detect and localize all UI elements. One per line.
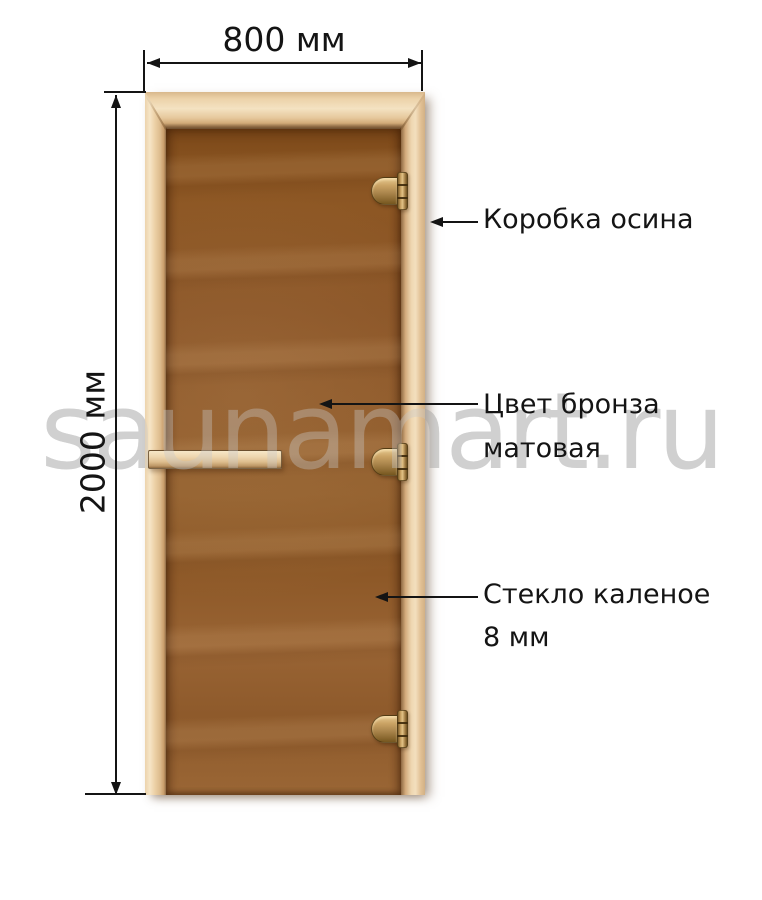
width-extension-line-left [143,50,145,91]
hinge-barrel [397,172,408,210]
hinge-barrel [397,710,408,748]
height-dimension-label: 2000 мм [74,370,113,514]
hinge-middle [371,443,409,481]
product-diagram: saunamart.ru saunamart.ru 800 мм [0,0,762,900]
door-handle [148,450,282,469]
height-extension-line-top [104,91,146,93]
width-dimension-label: 800 мм [147,20,421,59]
glass-type-annotation-line [388,596,478,598]
width-dimension-line [147,62,421,64]
frame-annotation-label: Коробка осина [483,204,694,236]
sauna-door [145,92,425,795]
frame-annotation-arrow-icon [430,217,443,227]
width-arrow-left-icon [147,58,160,68]
glass-color-annotation-line [332,403,478,405]
hinge-barrel [397,443,408,481]
hinge-flap [371,448,398,476]
hinge-top [371,172,409,210]
door-frame-left-stile [145,92,167,795]
height-arrow-up-icon [111,95,121,108]
height-arrow-down-icon [111,782,121,795]
width-arrow-right-icon [408,58,421,68]
door-frame-top-rail [145,92,425,129]
glass-color-annotation-arrow-icon [319,399,332,409]
hinge-flap [371,177,398,205]
glass-type-annotation-label: Стекло каленое 8 мм [483,573,710,659]
glass-color-annotation-label: Цвет бронза матовая [483,383,660,471]
hinge-bottom [371,710,409,748]
glass-type-annotation-line2: 8 мм [483,616,710,659]
glass-type-annotation-arrow-icon [375,592,388,602]
glass-type-annotation-line1: Стекло каленое [483,573,710,616]
frame-annotation-line [443,221,478,223]
width-extension-line-right [421,50,423,91]
glass-color-annotation-line2: матовая [483,427,660,471]
glass-color-annotation-line1: Цвет бронза [483,383,660,427]
height-dimension-line [115,95,117,795]
hinge-flap [371,715,398,743]
